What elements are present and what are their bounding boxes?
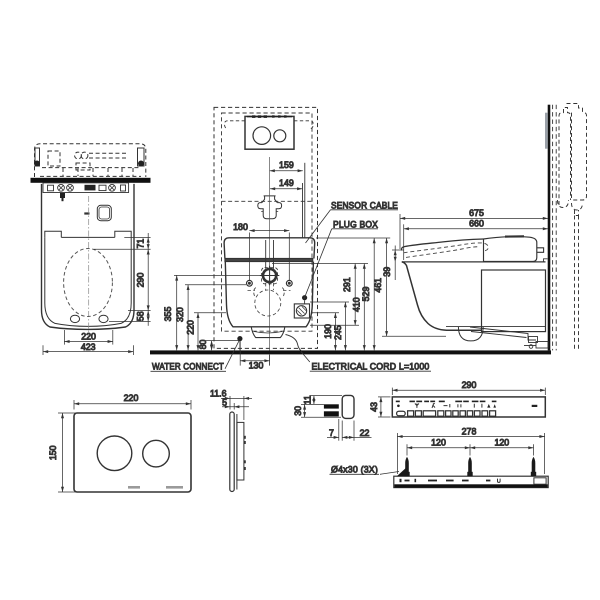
svg-text:30: 30 [293,406,303,416]
svg-text:5: 5 [222,397,227,407]
svg-text:675: 675 [469,208,484,218]
svg-text:11: 11 [303,395,313,404]
svg-text:130: 130 [249,361,264,371]
svg-text:278: 278 [462,426,477,436]
svg-text:461: 461 [373,278,383,293]
svg-text:660: 660 [469,218,484,228]
svg-text:245: 245 [333,325,343,340]
svg-text:43: 43 [369,402,379,412]
svg-text:355: 355 [163,307,173,322]
svg-text:220: 220 [124,393,139,403]
svg-text:ELECTRICAL CORD L=1000: ELECTRICAL CORD L=1000 [312,361,430,371]
svg-text:58: 58 [136,311,146,321]
svg-text:Ø4x30 (3X): Ø4x30 (3X) [331,464,378,474]
svg-text:180: 180 [233,222,248,232]
svg-text:120: 120 [431,437,446,447]
svg-text:529: 529 [361,287,371,302]
svg-text:PLUG BOX: PLUG BOX [333,219,378,229]
svg-text:290: 290 [136,273,146,288]
svg-text:423: 423 [81,342,96,352]
svg-text:150: 150 [48,445,58,460]
svg-text:80: 80 [198,340,208,350]
svg-text:SENSOR CABLE: SENSOR CABLE [331,200,398,210]
svg-text:291: 291 [342,277,352,292]
svg-text:149: 149 [279,178,294,188]
svg-text:39: 39 [382,267,392,277]
svg-text:120: 120 [494,437,509,447]
svg-text:220: 220 [186,320,196,335]
svg-text:290: 290 [462,380,477,390]
svg-text:190: 190 [323,324,333,339]
svg-text:7: 7 [329,428,334,438]
svg-text:WATER CONNECT: WATER CONNECT [152,361,224,371]
svg-text:220: 220 [81,332,96,342]
svg-text:320: 320 [175,307,185,322]
svg-text:71: 71 [136,239,146,249]
svg-text:22: 22 [360,428,370,438]
svg-text:159: 159 [279,160,294,170]
